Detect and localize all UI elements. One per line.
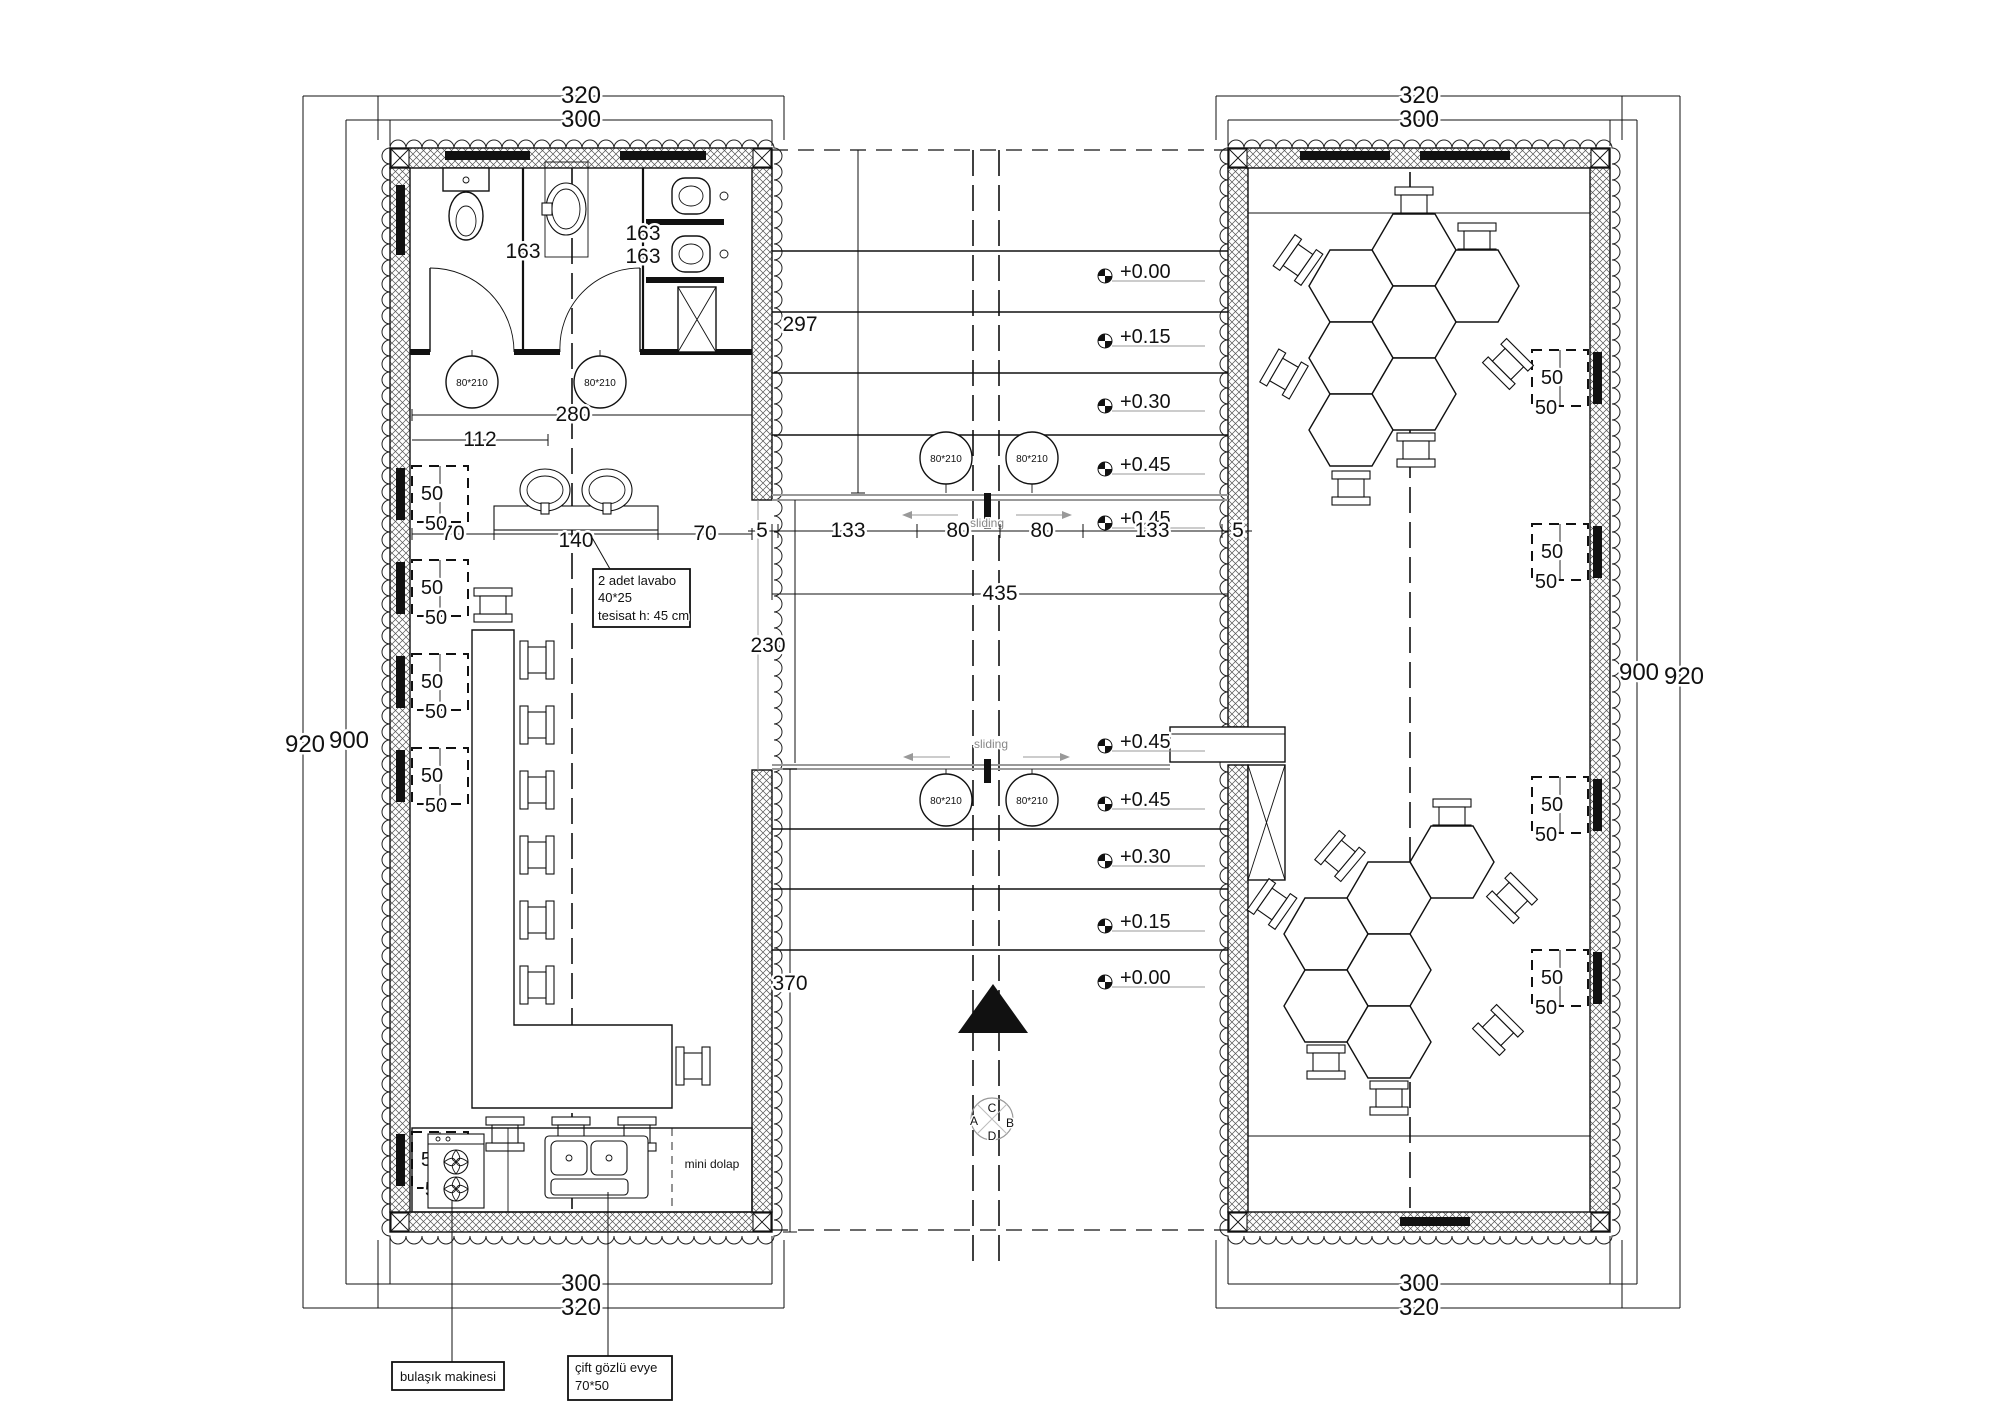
seat-label: 50 xyxy=(425,795,447,817)
central-link: sliding 80*210 80*210 +0.00 +0.15 +0.30 … xyxy=(748,150,1285,1262)
svg-text:80*210: 80*210 xyxy=(584,378,616,389)
seat-label: 50 xyxy=(1535,397,1557,419)
dim-label: 320 xyxy=(561,82,601,109)
left-block-wall-east-lower xyxy=(752,770,772,1212)
dim-label: 300 xyxy=(561,106,601,133)
dim-label: 300 xyxy=(1399,1270,1439,1297)
left-block-wall-bottom xyxy=(390,1212,772,1232)
chair xyxy=(1473,1005,1524,1056)
window-top-4 xyxy=(1420,151,1510,160)
kitchen: mini dolap bulaşık makinesi çift gözlü e… xyxy=(392,1128,752,1400)
level-label: +0.00 xyxy=(1120,261,1171,283)
seat-label: 50 xyxy=(421,483,443,505)
dim-label: 163 xyxy=(625,222,660,245)
dim-label: 230 xyxy=(750,634,785,657)
dim-label: 300 xyxy=(561,1270,601,1297)
right-block-wall-top xyxy=(1228,148,1610,168)
callout-dishwasher: bulaşık makinesi xyxy=(392,1362,504,1390)
dim-label: 133 xyxy=(830,519,865,542)
dim-label: 320 xyxy=(1399,82,1439,109)
section-reference-marker: C A B D xyxy=(970,1098,1014,1143)
dim-label: 370 xyxy=(772,972,807,995)
double-sink xyxy=(545,1136,648,1198)
shaft xyxy=(1248,765,1285,880)
upper-dim-chain: 5 133 80 80 133 5 435 xyxy=(748,519,1252,605)
chair xyxy=(1315,831,1365,882)
seat-label: 50 xyxy=(421,765,443,787)
chair xyxy=(1483,339,1534,390)
svg-text:40*25: 40*25 xyxy=(598,590,632,605)
window-west xyxy=(396,750,405,802)
entrance-arrow xyxy=(958,984,1028,1033)
level-label: +0.15 xyxy=(1120,911,1171,933)
chair xyxy=(520,706,554,744)
arrow-left xyxy=(902,511,912,519)
svg-text:80*210: 80*210 xyxy=(1016,454,1048,465)
dim-label: 920 xyxy=(1664,663,1704,690)
level-label: +0.30 xyxy=(1120,391,1171,413)
dim-label: 112 xyxy=(463,428,496,451)
seat-label: 50 xyxy=(421,577,443,599)
level-label: +0.00 xyxy=(1120,967,1171,989)
seat-label: 50 xyxy=(1535,571,1557,593)
corner-post xyxy=(391,1213,409,1231)
dim-label: 320 xyxy=(561,1294,601,1321)
level-label: +0.45 xyxy=(1120,454,1171,476)
chair xyxy=(520,966,554,1004)
window-top-3 xyxy=(1300,151,1390,160)
arrow-right xyxy=(1062,511,1072,519)
window-west xyxy=(396,656,405,708)
bathrooms: 80*210 80*210 163 163 163 280 112 xyxy=(410,162,752,451)
corner-post xyxy=(391,149,409,167)
right-block-wall-west-upper xyxy=(1228,168,1248,727)
corner-post xyxy=(1229,149,1247,167)
note-box-lavabo: 2 adet lavabo 40*25 tesisat h: 45 cm xyxy=(593,569,690,627)
door-swing-left-wc xyxy=(430,268,514,352)
hex-table-cluster-upper xyxy=(1260,187,1534,505)
seat-label: 50 xyxy=(425,607,447,629)
door-tag: 80*210 xyxy=(920,769,972,826)
toilet xyxy=(443,168,489,240)
window-west xyxy=(396,1134,405,1186)
right-block: 50 50 50 50 50 50 50 50 xyxy=(1220,140,1620,1244)
label-mini-dolap: mini dolap xyxy=(685,1157,740,1171)
door-tag: 80*210 xyxy=(920,432,972,493)
sliding-label: sliding xyxy=(970,516,1004,530)
svg-text:70*50: 70*50 xyxy=(575,1378,609,1393)
chair xyxy=(486,1117,524,1151)
section-letter-bottom: D xyxy=(988,1129,997,1143)
dim-label: 140 xyxy=(558,529,593,552)
seat-label: 50 xyxy=(425,513,447,535)
dining-table-group xyxy=(472,588,710,1151)
hall-cabinet xyxy=(1170,727,1285,762)
privacy-screen-2 xyxy=(646,277,724,283)
floor-plan-page: 80*210 80*210 163 163 163 280 112 70 xyxy=(0,0,2000,1415)
window-east xyxy=(1593,779,1602,831)
chair xyxy=(520,771,554,809)
arrow-right xyxy=(1060,753,1070,761)
window-east xyxy=(1593,526,1602,578)
corner-post xyxy=(1591,149,1609,167)
hex-table-cluster-lower xyxy=(1247,799,1537,1115)
dim-label: 80 xyxy=(946,519,969,542)
svg-text:80*210: 80*210 xyxy=(456,378,488,389)
chair xyxy=(520,836,554,874)
svg-text:80*210: 80*210 xyxy=(930,454,962,465)
seat-label: 50 xyxy=(1535,997,1557,1019)
dim-label: 5 xyxy=(1232,519,1244,542)
duct-shaft xyxy=(678,287,716,352)
dim-label: 900 xyxy=(1619,659,1659,686)
chair xyxy=(1487,873,1538,924)
dim-label: 297 xyxy=(782,313,817,336)
dim-label: 133 xyxy=(1134,519,1169,542)
chair xyxy=(1370,1081,1408,1115)
seat-label: 50 xyxy=(1541,367,1563,389)
sliding-label: sliding xyxy=(974,737,1008,751)
level-label: +0.30 xyxy=(1120,846,1171,868)
seat-label: 50 xyxy=(1541,794,1563,816)
window-bottom xyxy=(1400,1217,1470,1226)
wall-hung-toilet-1 xyxy=(672,178,728,214)
dishwasher xyxy=(428,1134,484,1208)
callout-sink: çift gözlü evye 70*50 xyxy=(568,1356,672,1400)
chair xyxy=(520,901,554,939)
dim-label: 80 xyxy=(1030,519,1053,542)
corner-post xyxy=(1591,1213,1609,1231)
corner-post xyxy=(753,149,771,167)
wall-hung-toilet-2 xyxy=(672,236,728,272)
chair xyxy=(1397,433,1435,467)
dim-label: 163 xyxy=(505,240,540,263)
window-west xyxy=(396,468,405,520)
left-block-wall-east-upper xyxy=(752,168,772,500)
seat-label: 50 xyxy=(425,701,447,723)
chair xyxy=(474,588,512,622)
section-letter-right: B xyxy=(1006,1116,1014,1130)
dim-label: 163 xyxy=(625,245,660,268)
dim-label: 280 xyxy=(555,403,590,426)
dim-label: 5 xyxy=(756,519,768,542)
window-west xyxy=(396,562,405,614)
svg-text:80*210: 80*210 xyxy=(1016,796,1048,807)
door-tag: 80*210 xyxy=(574,350,626,408)
seat-label: 50 xyxy=(421,671,443,693)
corner-post xyxy=(1229,1213,1247,1231)
left-block: 80*210 80*210 163 163 163 280 112 70 xyxy=(382,140,782,1400)
window-east xyxy=(1593,352,1602,404)
seat-label: 50 xyxy=(1541,541,1563,563)
dim-label: 70 xyxy=(693,522,716,545)
window-top-1 xyxy=(445,151,530,160)
window-top-2 xyxy=(620,151,706,160)
chair xyxy=(520,641,554,679)
right-block-wall-west-lower xyxy=(1228,765,1248,1212)
dim-label: 900 xyxy=(329,727,369,754)
svg-text:bulaşık makinesi: bulaşık makinesi xyxy=(400,1369,496,1384)
dim-label: 920 xyxy=(285,731,325,758)
seat-label: 50 xyxy=(1541,967,1563,989)
arrow-left xyxy=(903,753,913,761)
dim-label: 435 xyxy=(982,582,1017,605)
section-letter-left: A xyxy=(970,1114,978,1128)
seat-label: 50 xyxy=(1535,824,1557,846)
section-letter-top: C xyxy=(988,1101,997,1115)
dim-label: 300 xyxy=(1399,106,1439,133)
corner-post xyxy=(753,1213,771,1231)
door-tag: 80*210 xyxy=(446,350,498,408)
level-label: +0.45 xyxy=(1120,789,1171,811)
floor-plan-drawing: 80*210 80*210 163 163 163 280 112 70 xyxy=(0,0,2000,1415)
level-label: +0.15 xyxy=(1120,326,1171,348)
door-tag: 80*210 xyxy=(1006,432,1058,493)
door-tag: 80*210 xyxy=(1006,769,1058,826)
level-markers-upper: +0.00 +0.15 +0.30 +0.45 +0.45 xyxy=(1098,261,1205,530)
svg-text:tesisat h: 45 cm: tesisat h: 45 cm xyxy=(598,608,689,623)
window-east xyxy=(1593,952,1602,1004)
chair xyxy=(1247,879,1297,930)
chair xyxy=(1307,1045,1345,1079)
window-west-bath xyxy=(396,185,405,255)
dim-label: 320 xyxy=(1399,1294,1439,1321)
svg-text:çift gözlü evye: çift gözlü evye xyxy=(575,1360,657,1375)
svg-text:2 adet lavabo: 2 adet lavabo xyxy=(598,573,676,588)
chair xyxy=(1332,471,1370,505)
svg-text:80*210: 80*210 xyxy=(930,796,962,807)
right-block-wall-east xyxy=(1590,168,1610,1212)
chair xyxy=(676,1047,710,1085)
level-label: +0.45 xyxy=(1120,731,1171,753)
wall-sink xyxy=(542,162,588,257)
chair xyxy=(1260,349,1308,399)
